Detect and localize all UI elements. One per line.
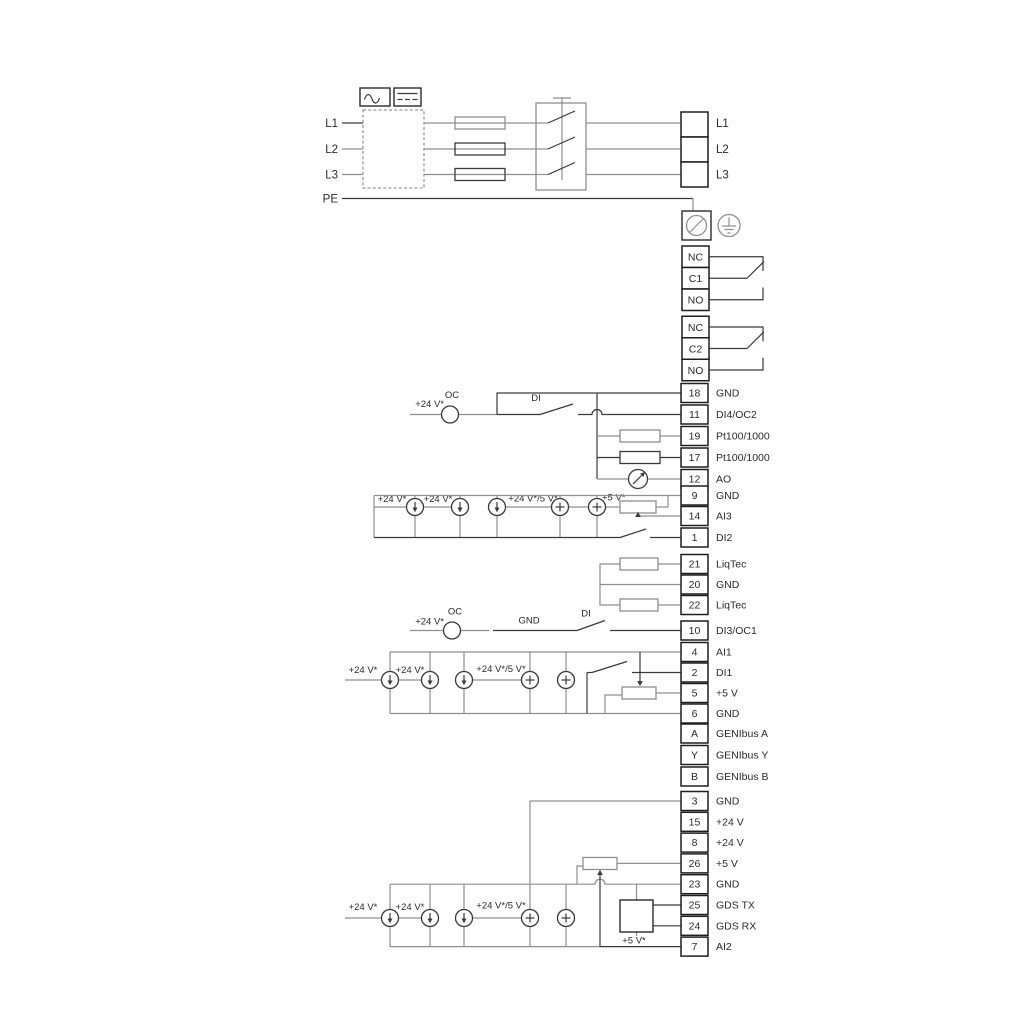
mains-out-l2: L2: [716, 144, 729, 156]
current-source-icon: [456, 672, 473, 689]
terminal-row: 4AI1: [681, 643, 732, 662]
terminal-row: 24GDS RX: [681, 916, 756, 935]
mains-out-l3: L3: [716, 170, 729, 182]
mains-label-l3: L3: [325, 170, 338, 182]
terminal-row: 2DI1: [681, 663, 733, 682]
pt100-sensor-symbol: [620, 430, 660, 442]
terminal-row: 20GND: [681, 575, 740, 594]
terminal-number: 15: [689, 816, 701, 828]
terminal-label: +5 V: [716, 858, 738, 870]
terminal-number: 4: [692, 647, 698, 659]
terminal-row: 6GND: [681, 704, 740, 723]
terminal-number: 19: [689, 431, 701, 443]
terminal-row: 23GND: [681, 875, 740, 894]
current-source-icon: [407, 499, 424, 516]
mains-section: L1 L2 L3 PE: [323, 88, 740, 240]
current-source-icon: [489, 499, 506, 516]
terminal-label: +24 V: [716, 837, 744, 849]
current-source-icon: [422, 910, 439, 927]
terminal-row: 17Pt100/1000: [681, 448, 770, 467]
terminal-number: 20: [689, 579, 701, 591]
terminal-row: 19Pt100/1000: [681, 427, 770, 446]
current-source-icon: [456, 910, 473, 927]
terminal-label: AI1: [716, 647, 732, 659]
potentiometer-symbol: [583, 858, 617, 870]
relay1-contact: [709, 257, 764, 300]
terminal-label: GDS RX: [716, 920, 756, 932]
relay1-c1: C1: [689, 273, 703, 285]
gds-sensor-box: [620, 900, 653, 932]
plus-source-icon: [552, 499, 569, 516]
plus24-5-label: +24 V*/5 V*: [476, 664, 526, 675]
terminal-number: B: [691, 771, 698, 783]
terminal-number: 7: [692, 941, 698, 953]
ai2-gds-circuit: +24 V* +24 V* +24 V*/5 V* +5 V*: [345, 801, 681, 947]
analog-meter-icon: [629, 470, 648, 489]
switch-blades: [536, 111, 575, 175]
terminal-number: Y: [691, 750, 698, 762]
terminal-number: 10: [689, 625, 701, 637]
terminal-label: GENIbus B: [716, 771, 769, 783]
terminal-label: AI2: [716, 941, 732, 953]
terminal-row: 14AI3: [681, 507, 732, 526]
terminal-row: 21LiqTec: [681, 555, 746, 574]
terminal-row: 10DI3/OC1: [681, 621, 757, 640]
terminal-label: GENIbus Y: [716, 750, 768, 762]
terminal-number: 24: [689, 920, 701, 932]
plus24-label: +24 V*: [396, 665, 425, 676]
ai3-circuit: +24 V* +24 V* +24 V*/5 V* +5 V*: [374, 493, 681, 538]
rfi-filter-box: [363, 110, 424, 188]
open-collector-icon: [442, 406, 459, 423]
mains-wires: [342, 123, 693, 211]
terminal-number: 1: [692, 532, 698, 544]
terminal-label: DI1: [716, 667, 733, 679]
terminal-row: 8+24 V: [681, 833, 744, 852]
earth-ground-icon: [718, 215, 740, 237]
terminal-row: 15+24 V: [681, 812, 744, 831]
terminal-label: +24 V: [716, 816, 744, 828]
terminal-label: GND: [716, 879, 740, 891]
terminal-label: GND: [716, 796, 740, 808]
terminal-label: DI4/OC2: [716, 409, 757, 421]
wiper-arrow: [597, 870, 603, 875]
current-source-icon: [452, 499, 469, 516]
plus-source-icon: [589, 499, 606, 516]
mains-label-l2: L2: [325, 144, 338, 156]
terminal-number: 18: [689, 388, 701, 400]
terminal-row: 3GND: [681, 792, 740, 811]
terminal-row: YGENIbus Y: [681, 746, 768, 765]
terminal-number: 5: [692, 688, 698, 700]
terminal-row: BGENIbus B: [681, 767, 769, 786]
oc-label: OC: [445, 390, 459, 401]
di-label: DI: [531, 393, 541, 404]
wiper-arrow: [637, 681, 643, 686]
plus24-label: +24 V*: [396, 902, 425, 913]
liqtec-sensor-symbol: [620, 599, 658, 611]
terminal-label: LiqTec: [716, 559, 746, 571]
mains-label-l1: L1: [325, 118, 338, 130]
terminal-label: GND: [716, 708, 740, 720]
terminal-number: 22: [689, 600, 701, 612]
terminal-label: AO: [716, 474, 731, 486]
terminal-row: 1DI2: [681, 528, 733, 547]
plus24-label: +24 V*: [349, 902, 378, 913]
plus-source-icon: [558, 672, 575, 689]
terminal-number: 11: [689, 409, 700, 421]
terminal-row: 18GND: [681, 384, 740, 403]
main-isolator-switch: [536, 98, 586, 190]
terminal-label: GND: [716, 490, 740, 502]
dc-icon-box: [394, 88, 421, 106]
terminal-number: 21: [689, 559, 701, 571]
terminal-number: 9: [692, 490, 698, 502]
terminal-number: 2: [692, 667, 698, 679]
relay2-no: NO: [688, 365, 704, 377]
terminal-label: Pt100/1000: [716, 431, 770, 443]
wiring-diagram: L1 L2 L3 PE: [0, 0, 1024, 1024]
liqtec-sensor-symbol: [620, 558, 658, 570]
terminal-row: 25GDS TX: [681, 896, 755, 915]
gnd-label: GND: [518, 616, 539, 627]
terminal-label: Pt100/1000: [716, 452, 770, 464]
relay1-section: NC C1 NO: [682, 246, 764, 311]
terminal-label: GDS TX: [716, 900, 755, 912]
terminal-label: DI2: [716, 532, 733, 544]
plus24-label: +24 V*: [415, 399, 444, 410]
terminal-number: 17: [689, 452, 701, 464]
terminal-number: 6: [692, 708, 698, 720]
current-source-icon: [382, 672, 399, 689]
relay1-nc: NC: [688, 252, 704, 264]
terminal-label: LiqTec: [716, 600, 746, 612]
terminal-number: 26: [689, 858, 701, 870]
terminal-row: 22LiqTec: [681, 596, 746, 615]
terminal-label: GND: [716, 388, 740, 400]
oc-label: OC: [448, 607, 462, 618]
io-terminal-block: 18GND 11DI4/OC2 19Pt100/1000 17Pt100/100…: [681, 384, 770, 957]
terminal-row: AGENIbus A: [681, 724, 768, 743]
mains-label-pe: PE: [323, 194, 339, 206]
pt100-sensor-symbol: [620, 452, 660, 464]
terminal-row: 26+5 V: [681, 854, 738, 873]
plus-source-icon: [558, 910, 575, 927]
plus5-label: +5 V*: [622, 936, 646, 947]
terminal-label: AI3: [716, 511, 732, 523]
terminal-label: DI3/OC1: [716, 625, 757, 637]
current-source-icon: [382, 910, 399, 927]
di-label: DI: [581, 609, 591, 620]
terminal-number: 3: [692, 796, 698, 808]
terminal-row: 11DI4/OC2: [681, 405, 757, 424]
potentiometer-symbol: [620, 501, 656, 513]
terminal-label: GND: [716, 579, 740, 591]
wiring-diagram-page: L1 L2 L3 PE: [0, 0, 1024, 1024]
relay1-no: NO: [688, 295, 704, 307]
plus-source-icon: [522, 672, 539, 689]
terminal-row: 5+5 V: [681, 684, 738, 703]
terminal-row: 7AI2: [681, 937, 732, 956]
terminal-number: A: [691, 728, 698, 740]
terminal-label: GENIbus A: [716, 728, 768, 740]
terminal-row: 9GND: [681, 486, 740, 505]
plus24-5-label: +24 V*/5 V*: [476, 901, 526, 912]
terminal-number: 8: [692, 837, 698, 849]
mains-terminal-block: L1 L2 L3: [681, 112, 729, 187]
plus-source-icon: [522, 910, 539, 927]
mains-out-l1: L1: [716, 118, 729, 130]
terminal-number: 25: [689, 900, 701, 912]
relay2-nc: NC: [688, 322, 704, 334]
ai1-circuit: +24 V* +24 V* +24 V*/5 V*: [345, 652, 681, 714]
open-collector-icon: [444, 622, 461, 639]
converter-icons: [360, 88, 421, 106]
plus24-label: +24 V*: [349, 665, 378, 676]
terminal-label: +5 V: [716, 688, 738, 700]
potentiometer-symbol: [622, 687, 656, 699]
relay2-c2: C2: [689, 343, 703, 355]
current-source-icon: [422, 672, 439, 689]
plus24-label: +24 V*: [415, 617, 444, 628]
relay2-section: NC C2 NO: [682, 316, 764, 381]
terminal-number: 23: [689, 879, 701, 891]
terminal-number: 14: [689, 511, 701, 523]
di4-circuit: +24 V* OC DI: [410, 390, 681, 489]
terminal-number: 12: [689, 474, 701, 486]
liqtec-circuit: [600, 558, 681, 611]
pe-ground: [682, 211, 740, 240]
relay2-contact: [709, 327, 764, 370]
